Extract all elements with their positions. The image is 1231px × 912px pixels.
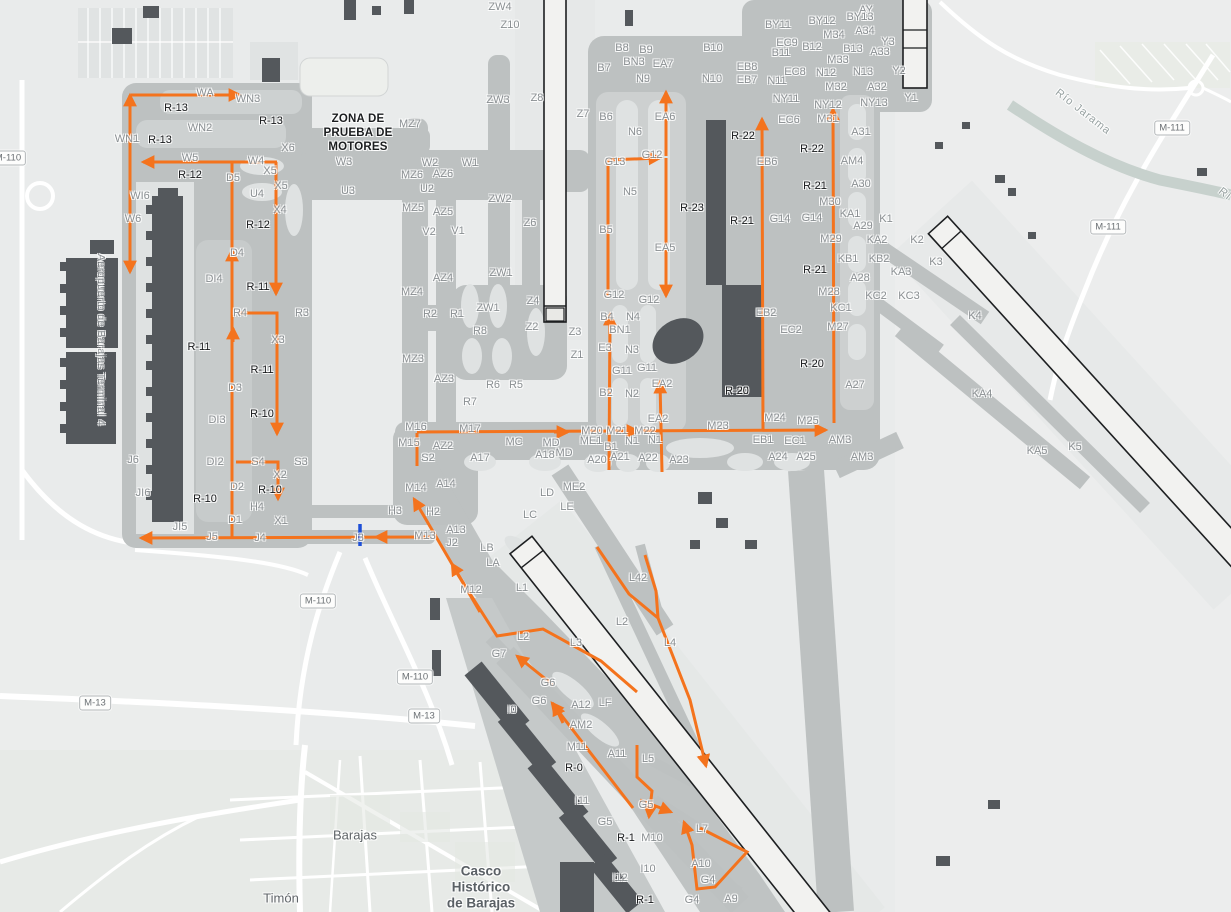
taxiway-label: Z7: [577, 108, 590, 120]
taxiway-label: M17: [459, 423, 480, 435]
route-label: R-11: [246, 281, 269, 293]
taxiway-label: A20: [587, 454, 607, 466]
engine-test-zone-label: MOTORES: [328, 141, 387, 153]
route-label: R-21: [803, 264, 827, 276]
taxiway-label: B4: [600, 311, 613, 323]
taxiway-label: A24: [768, 451, 788, 463]
taxiway-label: EC6: [778, 114, 799, 126]
route-label: R-11: [250, 364, 273, 376]
taxiway-label: N10: [702, 73, 722, 85]
taxiway-label: M16: [405, 421, 426, 433]
route-label: R-20: [800, 358, 824, 370]
taxiway-label: H3: [388, 505, 402, 517]
taxiway-label: Z8: [531, 92, 544, 104]
taxiway-label: I10: [640, 863, 655, 875]
road-badge: M-111: [1154, 121, 1190, 136]
taxiway-label: V1: [451, 225, 464, 237]
taxiway-label: N9: [636, 73, 650, 85]
taxiway-label: AZ4: [433, 272, 453, 284]
taxiway-label: L4: [664, 637, 676, 649]
route-label: R-23: [680, 202, 704, 214]
route-label: R-10: [193, 493, 217, 505]
taxiway-label: NY12: [814, 99, 842, 111]
taxiway-label: LA: [486, 557, 499, 569]
taxiway-label: BN1: [609, 324, 630, 336]
taxiway-label: I0: [507, 704, 516, 716]
taxiway-label: N11: [767, 75, 786, 87]
taxiway-label: WI6: [130, 190, 150, 202]
taxiway-label: M27: [827, 321, 848, 333]
taxiway-label: G11: [637, 362, 657, 374]
taxiway-label: L7: [696, 823, 708, 835]
taxiway-label: R3: [295, 307, 309, 319]
taxiway-label: MZ7: [399, 118, 421, 130]
taxiway-label: EB8: [737, 61, 758, 73]
taxiway-label: S2: [421, 452, 434, 464]
taxiway-label: M10: [641, 832, 662, 844]
taxiway-label: EC2: [780, 324, 801, 336]
taxiway-label: NY11: [773, 93, 800, 105]
taxiway-label: R1: [450, 308, 464, 320]
taxiway-label: X6: [281, 142, 294, 154]
taxiway-label: S4: [251, 456, 264, 468]
taxiway-label: DI3: [208, 414, 225, 426]
taxiway-label: M30: [819, 196, 840, 208]
taxiway-label: L2: [517, 631, 529, 643]
taxiway-label: G12: [604, 289, 625, 301]
taxiway-label: M15: [398, 437, 419, 449]
taxiway-label: WA: [196, 87, 213, 99]
road-badge: M-111: [1090, 220, 1126, 235]
taxiway-label: M11: [567, 741, 588, 753]
taxiway-label: A33: [870, 46, 890, 58]
taxiway-label: K5: [1068, 441, 1081, 453]
place-label: de Barajas: [447, 896, 515, 911]
taxiway-label: R5: [509, 379, 523, 391]
taxiway-label: EA2: [648, 413, 669, 425]
labels-layer: WAWN3WN2WN1W5W4X6X5X5U4X4WI6W6D5D4DI4R4R…: [0, 0, 1231, 912]
taxiway-label: BY12: [809, 15, 836, 27]
route-label: R-11: [187, 341, 210, 353]
taxiway-label: J4: [254, 532, 266, 544]
taxiway-label: X3: [271, 334, 284, 346]
taxiway-label: MZ6: [401, 169, 423, 181]
taxiway-label: X4: [273, 204, 286, 216]
taxiway-label: G13: [605, 156, 626, 168]
taxiway-label: H4: [250, 501, 264, 513]
taxiway-label: A17: [470, 452, 490, 464]
taxiway-label: X5: [274, 180, 287, 192]
route-label: R-22: [800, 143, 824, 155]
taxiway-label: R2: [423, 308, 437, 320]
taxiway-label: KA3: [891, 266, 912, 278]
taxiway-label: A27: [845, 379, 865, 391]
taxiway-label: KA2: [867, 234, 888, 246]
taxiway-label: EA7: [653, 58, 674, 70]
taxiway-label: B9: [639, 44, 652, 56]
taxiway-label: B7: [597, 62, 610, 74]
route-label: R-21: [730, 215, 754, 227]
taxiway-label: N1: [625, 435, 639, 447]
taxiway-label: LB: [480, 542, 493, 554]
taxiway-label: KC1: [830, 302, 851, 314]
taxiway-label: EB1: [753, 434, 774, 446]
taxiway-label: B2: [599, 387, 612, 399]
route-label: R-13: [259, 115, 283, 127]
taxiway-label: A29: [853, 220, 873, 232]
taxiway-label: G12: [642, 149, 663, 161]
taxiway-label: N1: [648, 434, 662, 446]
taxiway-label: N5: [623, 186, 637, 198]
taxiway-label: EA6: [655, 111, 676, 123]
taxiway-label: JI6: [136, 487, 151, 499]
water-label: Río Jarama: [1053, 87, 1113, 138]
route-label: R-12: [178, 169, 202, 181]
taxiway-label: B10: [703, 42, 723, 54]
taxiway-label: M24: [764, 412, 785, 424]
route-label: R-10: [258, 484, 282, 496]
route-label: R-22: [731, 130, 755, 142]
taxiway-label: G12: [639, 294, 660, 306]
taxiway-label: N13: [853, 66, 873, 78]
taxiway-label: M25: [797, 415, 818, 427]
taxiway-label: G11: [612, 365, 632, 377]
taxiway-label: WN2: [188, 122, 212, 134]
taxiway-label: KC2: [865, 290, 886, 302]
taxiway-label: L3: [570, 637, 582, 649]
taxiway-label: N3: [625, 344, 639, 356]
taxiway-label: AZ3: [434, 373, 454, 385]
taxiway-label: A30: [851, 178, 871, 190]
taxiway-label: EA5: [655, 242, 676, 254]
place-label: Timón: [263, 891, 299, 906]
taxiway-label: V2: [422, 226, 435, 238]
taxiway-label: G4: [701, 874, 716, 886]
taxiway-label: KA1: [840, 208, 861, 220]
taxiway-label: U4: [250, 188, 264, 200]
route-label: R-1: [636, 894, 654, 906]
taxiway-label: K3: [929, 256, 942, 268]
taxiway-label: LE: [560, 501, 573, 513]
taxiway-label: A9: [724, 893, 737, 905]
taxiway-label: K1: [879, 213, 892, 225]
taxiway-label: J5: [206, 531, 218, 543]
taxiway-label: MD: [555, 447, 572, 459]
water-label: Rí: [1216, 185, 1231, 202]
place-label: Casco: [461, 864, 502, 879]
taxiway-label: A23: [669, 454, 689, 466]
taxiway-label: D3: [228, 382, 242, 394]
taxiway-label: A10: [691, 858, 711, 870]
taxiway-label: D2: [230, 481, 244, 493]
taxiway-label: NY13: [860, 97, 888, 109]
taxiway-label: WN3: [236, 93, 260, 105]
taxiway-label: LD: [540, 487, 554, 499]
route-label: R-13: [164, 102, 188, 114]
taxiway-label: WN1: [115, 133, 139, 145]
taxiway-label: M12: [460, 584, 481, 596]
taxiway-label: ZW2: [488, 193, 511, 205]
taxiway-label: W1: [462, 157, 479, 169]
taxiway-label: Z6: [524, 217, 537, 229]
taxiway-label: MZ4: [401, 286, 423, 298]
taxiway-label: ME1: [580, 435, 603, 447]
taxiway-label: KA5: [1027, 445, 1048, 457]
engine-test-zone-label: PRUEBA DE: [323, 127, 392, 139]
taxiway-label: A18: [535, 449, 555, 461]
taxiway-label: U2: [420, 183, 434, 195]
taxiway-label: DI2: [206, 456, 223, 468]
taxiway-label: D1: [228, 514, 242, 526]
taxiway-label: W5: [182, 152, 199, 164]
taxiway-label: AZ6: [433, 168, 453, 180]
taxiway-label: G6: [532, 695, 547, 707]
taxiway-label: W4: [248, 155, 265, 167]
taxiway-label: R8: [473, 325, 487, 337]
taxiway-label: H2: [426, 506, 440, 518]
taxiway-label: KA4: [972, 388, 993, 400]
taxiway-label: ZW1: [489, 267, 512, 279]
taxiway-label: M14: [405, 482, 426, 494]
taxiway-label: D4: [230, 247, 244, 259]
taxiway-label: ZW4: [488, 1, 511, 13]
taxiway-label: EB7: [737, 74, 758, 86]
taxiway-label: BY11: [765, 19, 791, 31]
taxiway-label: B6: [599, 111, 612, 123]
taxiway-label: L42: [629, 572, 647, 584]
terminal-name-label: Aeropuerto de Barajas Terminal 4: [95, 254, 107, 426]
map-viewport[interactable]: WAWN3WN2WN1W5W4X6X5X5U4X4WI6W6D5D4DI4R4R…: [0, 0, 1231, 912]
taxiway-label: AM3: [851, 451, 874, 463]
taxiway-label: S3: [294, 456, 307, 468]
taxiway-label: JI5: [173, 521, 188, 533]
taxiway-label: Z3: [569, 326, 582, 338]
taxiway-label: G6: [541, 677, 556, 689]
taxiway-label: A25: [796, 451, 816, 463]
place-label: Histórico: [452, 880, 511, 895]
taxiway-label: M13: [414, 530, 435, 542]
route-label: R-21: [803, 180, 827, 192]
taxiway-label: M31: [817, 113, 838, 125]
taxiway-label: ME2: [563, 481, 586, 493]
taxiway-label: B12: [802, 41, 822, 53]
taxiway-label: Z2: [526, 321, 539, 333]
taxiway-label: G14: [802, 212, 823, 224]
taxiway-label: B5: [599, 224, 612, 236]
taxiway-label: A34: [855, 25, 875, 37]
taxiway-label: LC: [523, 509, 537, 521]
taxiway-label: ZW1: [476, 302, 499, 314]
taxiway-label: L2: [616, 616, 628, 628]
taxiway-label: AM3: [829, 434, 852, 446]
taxiway-label: L1: [516, 582, 528, 594]
taxiway-label: B11: [772, 47, 791, 59]
taxiway-label: M32: [825, 81, 846, 93]
taxiway-label: M33: [827, 54, 848, 66]
taxiway-label: U3: [341, 185, 355, 197]
taxiway-label: A32: [867, 81, 887, 93]
taxiway-label: I11: [575, 795, 589, 807]
taxiway-label: A31: [851, 126, 871, 138]
taxiway-label: AZ2: [433, 440, 453, 452]
road-badge: M-110: [0, 151, 26, 166]
taxiway-label: MZ3: [402, 353, 424, 365]
taxiway-label: J3: [352, 532, 364, 544]
taxiway-label: X5: [263, 165, 276, 177]
taxiway-label: D5: [226, 172, 240, 184]
route-label: R-13: [148, 134, 172, 146]
taxiway-label: Y2: [892, 65, 905, 77]
taxiway-label: G5: [598, 816, 613, 828]
taxiway-label: KB2: [869, 253, 890, 265]
taxiway-label: MZ5: [402, 202, 424, 214]
taxiway-label: AZ5: [433, 206, 453, 218]
taxiway-label: BY13: [847, 11, 874, 23]
taxiway-label: AM2: [570, 719, 593, 731]
taxiway-label: N4: [626, 311, 640, 323]
taxiway-label: Z10: [501, 19, 520, 31]
taxiway-label: G5: [639, 799, 654, 811]
taxiway-label: K4: [968, 310, 981, 322]
taxiway-label: I12: [612, 872, 627, 884]
taxiway-label: Z4: [527, 295, 540, 307]
taxiway-label: A22: [638, 452, 658, 464]
route-label: R-12: [246, 219, 270, 231]
taxiway-label: BN3: [623, 56, 644, 68]
taxiway-label: X1: [274, 515, 287, 527]
road-badge: M-110: [397, 670, 433, 685]
taxiway-label: N12: [816, 67, 836, 79]
taxiway-label: EA2: [652, 378, 673, 390]
taxiway-label: W6: [125, 213, 142, 225]
route-label: R-0: [565, 762, 583, 774]
taxiway-label: K2: [910, 234, 923, 246]
taxiway-label: Y1: [904, 92, 917, 104]
taxiway-label: M23: [707, 420, 728, 432]
taxiway-label: AM4: [841, 155, 864, 167]
taxiway-label: DI4: [205, 273, 222, 285]
taxiway-label: N6: [628, 126, 642, 138]
route-label: R-20: [725, 385, 749, 397]
taxiway-label: W3: [336, 156, 353, 168]
taxiway-label: L5: [642, 753, 654, 765]
taxiway-label: J2: [446, 537, 458, 549]
road-badge: M-13: [408, 709, 440, 724]
taxiway-label: EB2: [756, 307, 777, 319]
taxiway-label: ZW3: [486, 94, 509, 106]
taxiway-label: MC: [505, 436, 522, 448]
taxiway-label: KB1: [838, 253, 859, 265]
place-label: Barajas: [333, 828, 377, 843]
engine-test-zone-label: ZONA DE: [332, 113, 385, 125]
taxiway-label: R4: [233, 307, 247, 319]
taxiway-label: M28: [818, 286, 839, 298]
route-label: R-1: [617, 832, 635, 844]
road-badge: M-13: [79, 696, 111, 711]
taxiway-label: Z1: [571, 349, 584, 361]
taxiway-label: G4: [685, 894, 700, 906]
taxiway-label: A11: [608, 748, 627, 760]
road-badge: M-110: [300, 594, 336, 609]
taxiway-label: A14: [436, 478, 456, 490]
taxiway-label: R6: [486, 379, 500, 391]
taxiway-label: B8: [615, 42, 628, 54]
taxiway-label: X2: [273, 469, 286, 481]
taxiway-label: N2: [625, 388, 639, 400]
taxiway-label: EB6: [757, 156, 778, 168]
route-label: R-10: [250, 408, 274, 420]
taxiway-label: A28: [850, 272, 870, 284]
taxiway-label: M34: [823, 29, 844, 41]
taxiway-label: KC3: [898, 290, 919, 302]
taxiway-label: EC8: [784, 66, 805, 78]
taxiway-label: M29: [820, 233, 841, 245]
taxiway-label: LF: [599, 697, 612, 709]
taxiway-label: A12: [571, 699, 591, 711]
taxiway-label: G7: [492, 648, 507, 660]
taxiway-label: EC1: [784, 435, 805, 447]
taxiway-label: A21: [610, 451, 630, 463]
taxiway-label: G14: [770, 213, 791, 225]
taxiway-label: R7: [463, 396, 477, 408]
taxiway-label: E3: [598, 342, 611, 354]
taxiway-label: A13: [446, 524, 466, 536]
taxiway-label: J6: [127, 454, 139, 466]
